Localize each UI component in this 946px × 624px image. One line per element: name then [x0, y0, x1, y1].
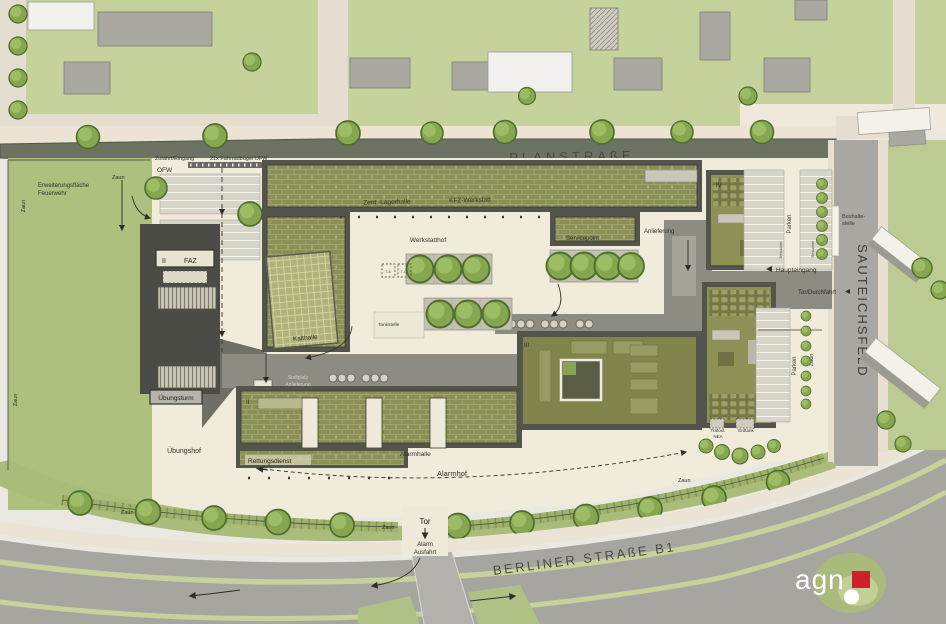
- tree-icon: [801, 399, 811, 409]
- tree-icon: [136, 500, 161, 525]
- tree-icon: [427, 301, 454, 328]
- hall-gap: [366, 398, 382, 448]
- bus-stop-label-1: Bushalte-: [842, 214, 865, 220]
- level-label-iii: III: [524, 343, 529, 349]
- rettungsdienst-label: Rettungsdienst: [248, 458, 292, 465]
- tree-icon: [9, 101, 27, 119]
- fence-label: Zaun: [382, 525, 395, 531]
- alarm-exit-label-1: Alarm: [417, 542, 433, 548]
- t-box-label: T-6: [385, 269, 392, 274]
- tankstelle-label: Tankstelle: [378, 322, 400, 328]
- agn-logo-text: agn: [795, 564, 845, 595]
- tree-icon: [895, 436, 911, 452]
- tree-icon: [145, 177, 167, 199]
- tree-icon: [77, 126, 100, 149]
- fence-label: Zaun: [112, 175, 125, 181]
- uebungsturm-label: Übungsturm: [158, 394, 193, 402]
- tree-icon: [912, 258, 932, 278]
- tree-icon: [801, 356, 811, 366]
- tree-icon: [801, 311, 811, 321]
- haupteingang-label: Haupteingang: [776, 267, 817, 274]
- alarmhof-label: Alarmhof: [437, 469, 468, 478]
- tree-icon: [202, 506, 226, 530]
- alarmhalle-label: Alarmhalle: [400, 451, 431, 458]
- tree-icon: [817, 207, 828, 218]
- besucher-label: Besucher: [778, 241, 783, 259]
- tree-icon: [699, 439, 713, 453]
- building-faz: II FAZ Übungsturm: [140, 224, 220, 404]
- hall-label-lager: Zent.-Lagerhalle: [363, 198, 411, 206]
- tree-icon: [330, 513, 354, 537]
- tree-icon: [618, 253, 644, 279]
- alarm-exit-label-2: Ausfahrt: [414, 550, 437, 556]
- fence-label: Zaun: [13, 394, 19, 407]
- building-kalthalle: Kalthalle: [266, 251, 338, 348]
- tree-icon: [732, 448, 748, 464]
- tree-icon: [671, 121, 693, 143]
- tree-icon: [9, 69, 27, 87]
- tree-icon: [547, 253, 574, 280]
- tree-icon: [768, 440, 781, 453]
- delivery-spot-label-1: Stellplatz: [288, 375, 309, 381]
- tree-icon: [739, 87, 757, 105]
- fence-label: Zaun: [678, 478, 691, 484]
- nea-label: NEA: [713, 434, 722, 439]
- tree-icon: [435, 256, 462, 283]
- bike-rack-label: 21x Fahrradbügel OFW: [210, 156, 268, 162]
- tree-icon: [9, 37, 27, 55]
- expansion-label-1: Erweiterungsfläche: [38, 183, 90, 189]
- tree-icon: [421, 122, 443, 144]
- hall-label-kfz: KFZ-Werkstatt: [449, 196, 491, 204]
- t-box-label: T-Q: [401, 269, 408, 274]
- tree-icon: [494, 121, 517, 144]
- tree-icon: [510, 511, 534, 535]
- site-plan-drawing: PLANSTRAßE BERLINER STR: [0, 0, 946, 624]
- ofw-label: OFW: [157, 167, 173, 174]
- tor-durchfahrt-label: Tor/Durchfahrt: [798, 290, 836, 296]
- tree-icon: [877, 411, 895, 429]
- tree-icon: [751, 121, 774, 144]
- agn-logo-dot-icon: [844, 590, 859, 605]
- hall-gap: [302, 398, 318, 448]
- entry-label: Zufahrt/Eingang: [155, 156, 194, 162]
- fence-label: Zaun: [21, 200, 27, 213]
- tree-icon: [801, 326, 811, 336]
- skylight: [645, 170, 697, 182]
- hall-gap: [430, 398, 446, 448]
- trafo-label: Trafost.: [710, 428, 725, 433]
- tree-icon: [817, 235, 828, 246]
- servicepoint-label: Servicepoint: [566, 236, 599, 242]
- uebungshof-label: Übungshof: [167, 447, 201, 455]
- tree-icon: [243, 53, 261, 71]
- level-label-iv: IV: [716, 183, 722, 189]
- erdtank-label: Erdtank: [738, 428, 754, 433]
- tree-icon: [801, 386, 811, 396]
- parken-label: Parken: [792, 356, 798, 375]
- level-label-ii: II: [246, 400, 250, 406]
- tree-icon: [817, 249, 828, 260]
- expansion-label-2: Feuerwehr: [38, 191, 67, 197]
- tree-icon: [571, 253, 598, 280]
- tree-icon: [817, 193, 828, 204]
- bus-stop-label-2: stelle: [842, 221, 855, 227]
- gate-label: Tor: [419, 517, 430, 526]
- tree-icon: [9, 5, 27, 23]
- anlieferung-label: Anlieferung: [644, 229, 674, 235]
- expansion-lawn: [8, 158, 152, 510]
- tree-icon: [483, 301, 510, 328]
- tree-icon: [751, 445, 765, 459]
- faz-level-label: II: [162, 258, 166, 265]
- tree-icon: [931, 281, 946, 299]
- tree-icon: [455, 301, 482, 328]
- tree-icon: [407, 256, 434, 283]
- tree-icon: [801, 371, 811, 381]
- tree-icon: [801, 341, 811, 351]
- faz-label: FAZ: [184, 258, 198, 265]
- building-iii: III: [517, 331, 702, 430]
- tree-icon: [715, 445, 730, 460]
- tree-icon: [817, 179, 828, 190]
- werkstatthof-label: Werkstatthof: [410, 237, 447, 244]
- tree-icon: [238, 202, 262, 226]
- tree-icon: [519, 88, 536, 105]
- tree-icon: [336, 121, 360, 145]
- besucher-label: Besucher: [810, 240, 815, 258]
- tree-icon: [590, 120, 614, 144]
- site-plan-screenshot: PLANSTRAßE BERLINER STR: [0, 0, 946, 624]
- tree-icon: [203, 124, 227, 148]
- tree-icon: [68, 491, 92, 515]
- fence-label: Zaun: [121, 510, 134, 516]
- tree-icon: [266, 510, 291, 535]
- parken-label: Parken: [787, 214, 793, 233]
- tree-icon: [817, 221, 828, 232]
- tree-icon: [463, 256, 490, 283]
- tree-icon: [446, 514, 471, 539]
- agn-logo-square-icon: [852, 571, 870, 588]
